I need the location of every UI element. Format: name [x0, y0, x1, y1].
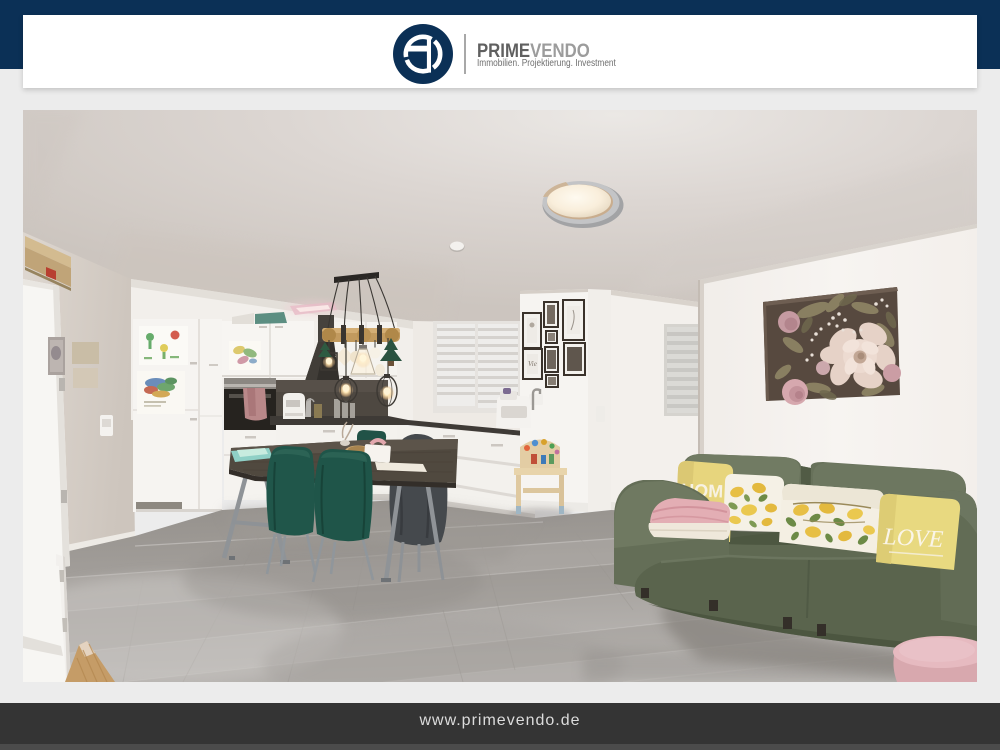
svg-text:Vie: Vie: [528, 360, 537, 368]
svg-text:LOVE: LOVE: [882, 524, 945, 553]
